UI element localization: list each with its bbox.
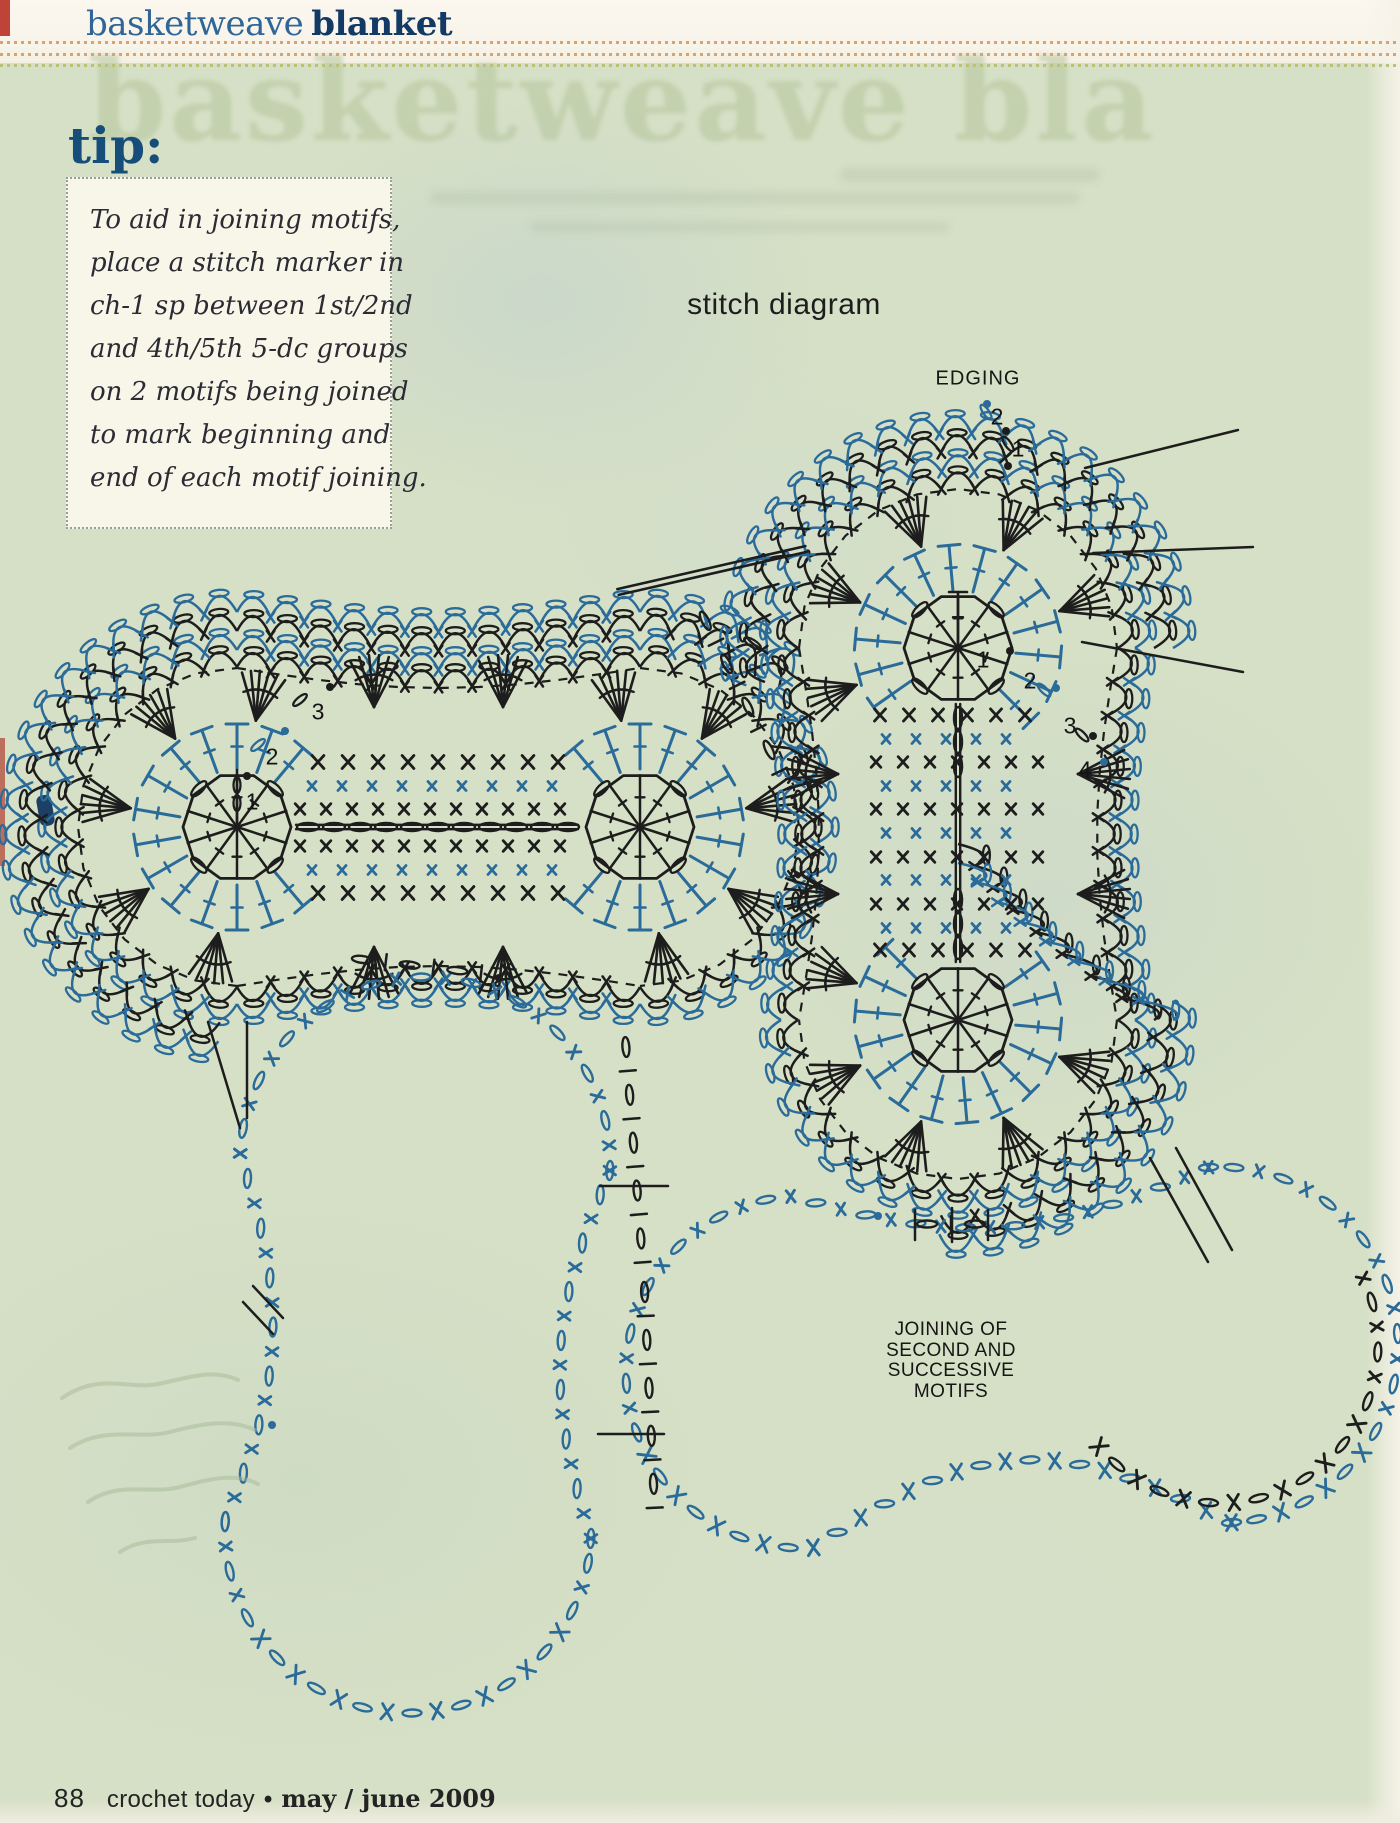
edging-round-label: 2 — [991, 404, 1004, 431]
joining-note-line: SECOND AND — [886, 1341, 1016, 1362]
round-number-label: 3 — [1064, 713, 1077, 740]
footer-separator: • — [264, 1786, 272, 1814]
joining-note-line: MOTIFS — [886, 1382, 1016, 1403]
second-motif — [720, 410, 1196, 1258]
round-number-label: 3 — [312, 699, 325, 726]
round-number-label: 2 — [266, 744, 279, 771]
round-marker-dots — [243, 400, 1108, 1429]
tip-line: on 2 motifs being joined — [90, 371, 376, 414]
joining-note-line: JOINING OF — [886, 1320, 1016, 1341]
magazine-name: crochet today — [107, 1786, 255, 1814]
round-number-label: 2 — [1024, 668, 1037, 695]
tip-heading: tip: — [68, 116, 164, 175]
page-footer: 88 crochet today • may / june 2009 — [54, 1783, 496, 1814]
page-number: 88 — [54, 1783, 85, 1814]
joining-note: JOINING OF SECOND AND SUCCESSIVE MOTIFS — [886, 1320, 1016, 1402]
tip-line: and 4th/5th 5-dc groups — [90, 328, 376, 371]
tip-line: To aid in joining motifs, — [90, 199, 376, 242]
third-motif-outline — [220, 972, 616, 1720]
tip-line: to mark beginning and — [90, 414, 376, 457]
first-motif — [0, 589, 839, 1063]
edging-round-label: 1 — [1012, 436, 1025, 463]
issue-date: may / june 2009 — [281, 1784, 495, 1813]
round-number-label: 1 — [977, 647, 990, 674]
tip-line: place a stitch marker in — [90, 242, 376, 285]
diagram-title: stitch diagram — [687, 288, 881, 322]
tip-line: ch-1 sp between 1st/2nd — [90, 285, 376, 328]
round-number-label: 1 — [246, 789, 259, 816]
edging-label: EDGING — [936, 368, 1021, 391]
tip-box: To aid in joining motifs, place a stitch… — [66, 177, 392, 529]
tip-line: end of each motif joining. — [90, 457, 376, 500]
round-number-label: 4 — [1079, 757, 1092, 784]
joining-note-line: SUCCESSIVE — [886, 1361, 1016, 1382]
magazine-page: basketweave blankets basketweaveblanket … — [0, 0, 1400, 1823]
